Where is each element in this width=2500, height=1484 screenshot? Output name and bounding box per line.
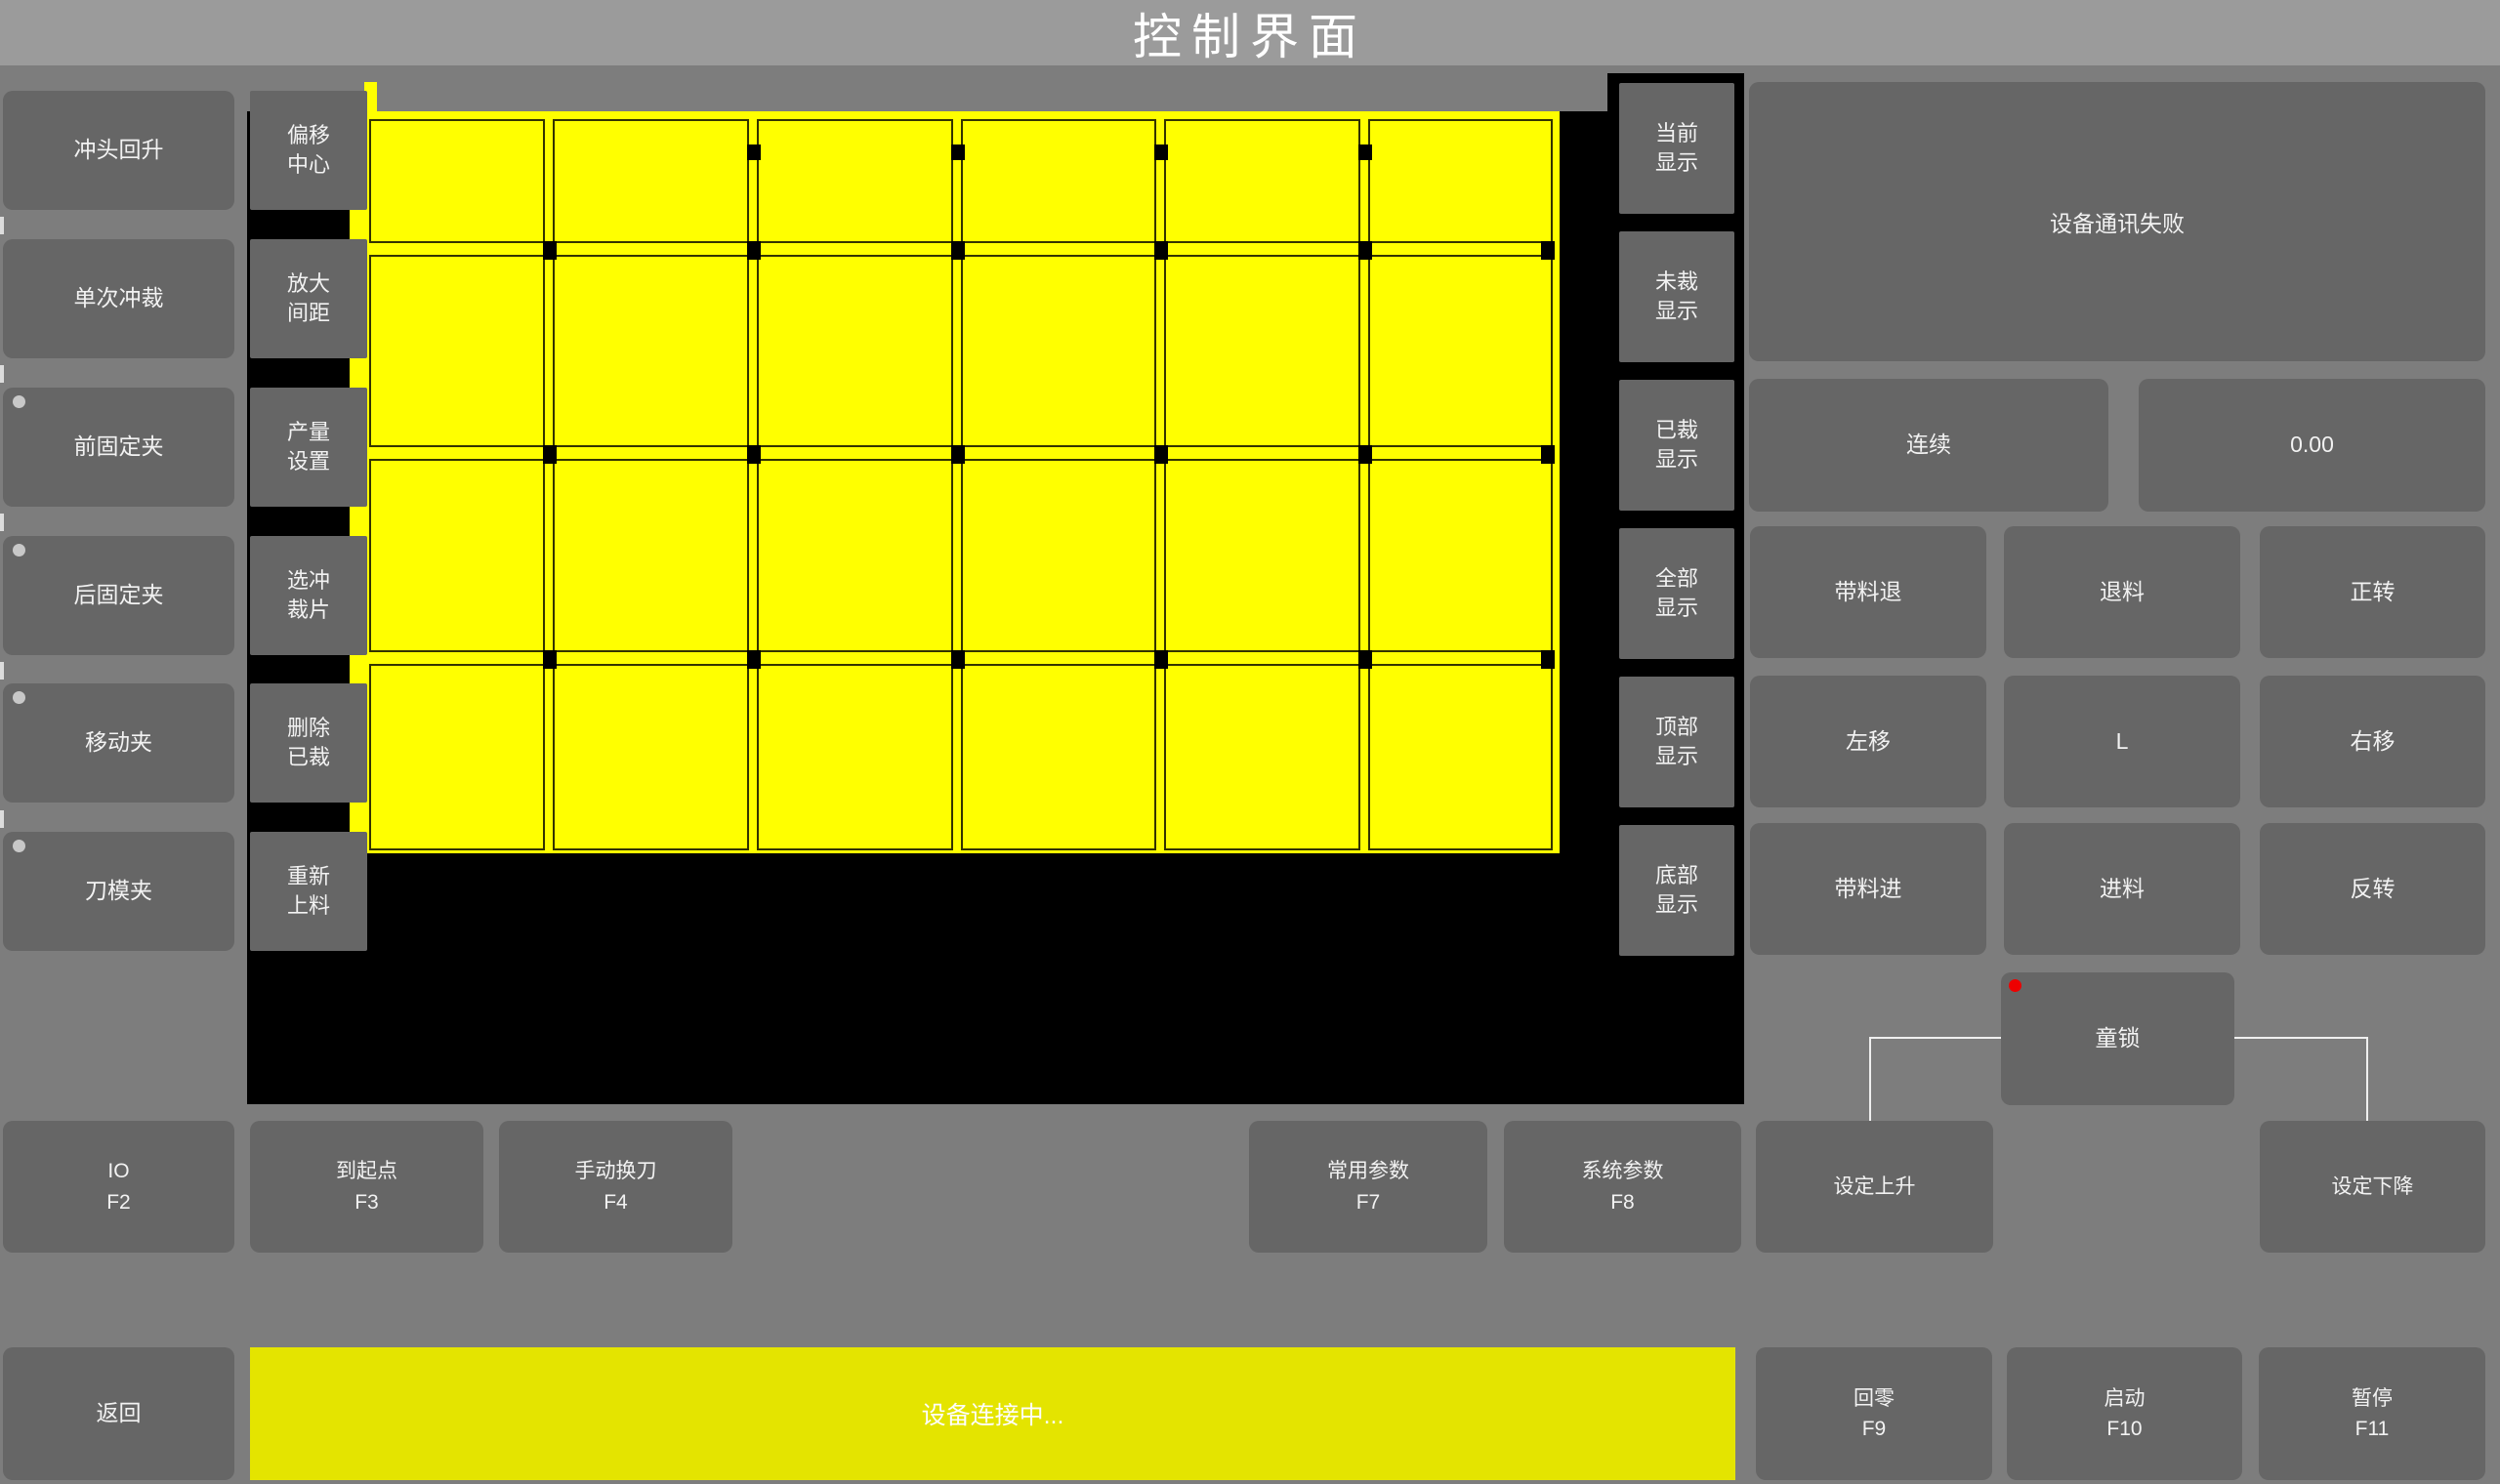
continuous-mode-button[interactable]: 连续 — [1749, 379, 2108, 512]
strip-forward-button[interactable]: 带料进 — [1750, 823, 1986, 955]
cut-piece[interactable] — [1164, 459, 1360, 652]
punch-raise-button[interactable]: 冲头回升 — [3, 91, 234, 210]
delete-cut-button[interactable]: 删除 已裁 — [250, 683, 367, 803]
cut-piece[interactable] — [961, 119, 1156, 243]
page-title: 控制界面 — [1133, 0, 1367, 68]
edge-tick — [0, 810, 4, 828]
cut-piece[interactable] — [757, 119, 953, 243]
cut-mark-notch — [543, 650, 557, 669]
cut-piece[interactable] — [553, 664, 749, 850]
cut-mark-notch — [951, 445, 965, 464]
bracket-line — [2366, 1037, 2368, 1121]
edge-tick — [0, 662, 4, 680]
child-lock-button[interactable]: 童锁 — [2001, 972, 2234, 1105]
cut-piece[interactable] — [961, 664, 1156, 850]
cut-piece[interactable] — [1368, 119, 1553, 243]
cut-piece[interactable] — [553, 255, 749, 447]
reverse-rotate-button[interactable]: 反转 — [2260, 823, 2485, 955]
move-left-button[interactable]: 左移 — [1750, 676, 1986, 807]
cut-mark-notch — [1154, 650, 1168, 669]
connection-status-bar: 设备连接中... — [250, 1347, 1735, 1480]
die-clamp-button[interactable]: 刀模夹 — [3, 832, 234, 951]
title-bar: 控制界面 — [0, 0, 2500, 65]
cut-mark-notch — [951, 144, 965, 160]
comm-status-text: 设备通讯失败 — [2050, 205, 2185, 238]
control-interface: 控制界面 冲头回升单次冲裁前固定夹后固定夹移动夹刀模夹偏移 中心放大 间距产量 … — [0, 0, 2500, 1484]
cut-mark-notch — [1154, 144, 1168, 160]
cut-piece[interactable] — [369, 255, 545, 447]
forward-rotate-button[interactable]: 正转 — [2260, 526, 2485, 658]
cut-piece[interactable] — [961, 459, 1156, 652]
yield-settings-button[interactable]: 产量 设置 — [250, 388, 367, 507]
connection-status-text: 设备连接中... — [922, 1396, 1064, 1431]
cut-piece[interactable] — [1368, 459, 1553, 652]
cut-mark-notch — [747, 650, 761, 669]
io-f2-button[interactable]: IO F2 — [3, 1121, 234, 1253]
current-display-button[interactable]: 当前 显示 — [1619, 83, 1734, 214]
start-f10-button[interactable]: 启动 F10 — [2007, 1347, 2242, 1480]
value-display[interactable]: 0.00 — [2139, 379, 2485, 512]
cut-mark-notch — [951, 650, 965, 669]
cut-piece[interactable] — [1368, 255, 1553, 447]
offset-center-button[interactable]: 偏移 中心 — [250, 91, 367, 210]
top-display-button[interactable]: 顶部 显示 — [1619, 677, 1734, 807]
bracket-line — [1869, 1037, 2001, 1039]
clamp-indicator-icon — [13, 840, 25, 852]
cut-mark-notch — [1358, 650, 1372, 669]
cut-piece[interactable] — [1368, 664, 1553, 850]
cut-mark-notch — [747, 241, 761, 260]
cut-mark-notch — [1358, 445, 1372, 464]
cut-piece[interactable] — [1164, 119, 1360, 243]
clamp-indicator-icon — [13, 691, 25, 704]
clamp-indicator-icon — [13, 395, 25, 408]
child-lock-label: 童锁 — [2096, 1023, 2141, 1053]
cut-mark-notch — [747, 445, 761, 464]
system-params-f8-button[interactable]: 系统参数 F8 — [1504, 1121, 1741, 1253]
all-display-button[interactable]: 全部 显示 — [1619, 528, 1734, 659]
edge-tick — [0, 217, 4, 234]
feed-button[interactable]: 进料 — [2004, 823, 2240, 955]
set-rise-button[interactable]: 设定上升 — [1756, 1121, 1993, 1253]
cut-mark-notch — [1541, 241, 1555, 260]
cut-piece[interactable] — [757, 664, 953, 850]
pause-f11-button[interactable]: 暂停 F11 — [2259, 1347, 2485, 1480]
cut-mark-notch — [1541, 445, 1555, 464]
child-lock-indicator-icon — [2009, 979, 2021, 992]
cut-mark-notch — [951, 241, 965, 260]
edge-tick — [0, 514, 4, 531]
enlarge-spacing-button[interactable]: 放大 间距 — [250, 239, 367, 358]
unload-button[interactable]: 退料 — [2004, 526, 2240, 658]
cut-mark-notch — [747, 144, 761, 160]
origin-f3-button[interactable]: 到起点 F3 — [250, 1121, 483, 1253]
cut-mark-notch — [1154, 241, 1168, 260]
cut-piece[interactable] — [369, 119, 545, 243]
reload-material-button[interactable]: 重新 上料 — [250, 832, 367, 951]
moving-clamp-button[interactable]: 移动夹 — [3, 683, 234, 803]
front-clamp-button[interactable]: 前固定夹 — [3, 388, 234, 507]
cut-piece[interactable] — [961, 255, 1156, 447]
bottom-display-button[interactable]: 底部 显示 — [1619, 825, 1734, 956]
home-f9-button[interactable]: 回零 F9 — [1756, 1347, 1992, 1480]
cut-mark-notch — [1541, 650, 1555, 669]
single-punch-button[interactable]: 单次冲裁 — [3, 239, 234, 358]
back-button[interactable]: 返回 — [3, 1347, 234, 1480]
cut-mark-notch — [543, 241, 557, 260]
uncut-display-button[interactable]: 未裁 显示 — [1619, 231, 1734, 362]
bracket-line — [1869, 1037, 1871, 1121]
cut-piece[interactable] — [757, 459, 953, 652]
cut-mark-notch — [1358, 144, 1372, 160]
common-params-f7-button[interactable]: 常用参数 F7 — [1249, 1121, 1487, 1253]
cut-piece[interactable] — [553, 459, 749, 652]
move-right-button[interactable]: 右移 — [2260, 676, 2485, 807]
select-piece-button[interactable]: 选冲 裁片 — [250, 536, 367, 655]
rear-clamp-button[interactable]: 后固定夹 — [3, 536, 234, 655]
cut-mark-notch — [543, 445, 557, 464]
cut-display-button[interactable]: 已裁 显示 — [1619, 380, 1734, 511]
bracket-line — [2234, 1037, 2368, 1039]
l-button[interactable]: L — [2004, 676, 2240, 807]
cut-piece[interactable] — [1164, 255, 1360, 447]
edge-tick — [0, 365, 4, 383]
cut-mark-notch — [1154, 445, 1168, 464]
cut-piece[interactable] — [757, 255, 953, 447]
cut-mark-notch — [1358, 241, 1372, 260]
cut-piece[interactable] — [369, 664, 545, 850]
clamp-indicator-icon — [13, 544, 25, 556]
set-fall-button[interactable]: 设定下降 — [2260, 1121, 2485, 1253]
comm-status-panel: 设备通讯失败 — [1749, 82, 2485, 361]
strip-back-button[interactable]: 带料退 — [1750, 526, 1986, 658]
cut-piece[interactable] — [1164, 664, 1360, 850]
cut-piece[interactable] — [553, 119, 749, 243]
manual-tool-change-f4-button[interactable]: 手动换刀 F4 — [499, 1121, 732, 1253]
cut-piece[interactable] — [369, 459, 545, 652]
